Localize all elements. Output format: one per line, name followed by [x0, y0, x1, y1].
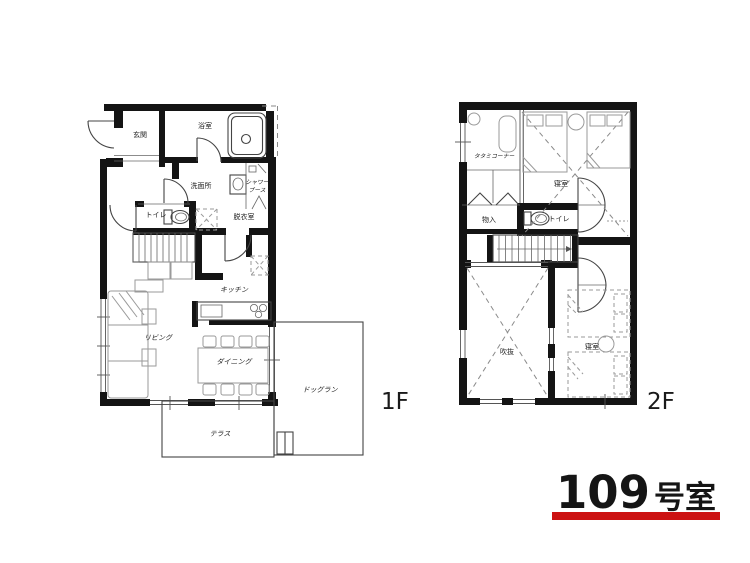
floor-tag-2f: 2F — [647, 389, 675, 415]
room-label-bedroom2: 寝室 — [585, 342, 599, 351]
room-label-shower-1: シャワー — [245, 179, 268, 186]
room-label-bathroom: 浴室 — [198, 121, 212, 130]
room-label-dining: ダイニング — [217, 358, 253, 366]
door-swing-icons-1f — [88, 121, 251, 261]
chair-icon — [468, 113, 480, 125]
washer-pan-icon — [196, 209, 217, 230]
floor-plan-1f: 玄関 浴室 洗面所 シャワー ブース トイレ 脱衣室 キッチン リビング ダイニ… — [88, 104, 409, 457]
room-label-washroom: 洗面所 — [191, 181, 212, 190]
floor-tag-1f: 1F — [381, 389, 409, 415]
room-label-void: 吹抜 — [500, 347, 514, 356]
low-table-icon — [499, 116, 516, 152]
bathtub-icon — [228, 113, 266, 158]
floorplan-drawing: 玄関 浴室 洗面所 シャワー ブース トイレ 脱衣室 キッチン リビング ダイニ… — [0, 0, 750, 563]
floorplan-page: 玄関 浴室 洗面所 シャワー ブース トイレ 脱衣室 キッチン リビング ダイニ… — [0, 0, 750, 563]
room-label-shower-2: ブース — [248, 187, 265, 194]
terrace-outline — [162, 401, 274, 457]
staircase-2f — [465, 235, 578, 267]
room-label-toilet-2f: トイレ — [549, 215, 570, 223]
room-label-bedroom1: 寝室 — [554, 179, 568, 188]
room-label-closet: 物入 — [482, 215, 496, 224]
stair-arrow-icon — [566, 246, 572, 252]
room-label-tatami: タタミコーナー — [474, 153, 515, 160]
bed-icons-bedroom1 — [523, 112, 630, 172]
refrigerator-space-icon — [251, 256, 268, 275]
room-label-dressing: 脱衣室 — [234, 212, 255, 221]
floor-plan-2f: タタミコーナー 寝室 物入 トイレ 吹抜 寝室 2F — [455, 102, 675, 415]
toilet-door-icon — [110, 205, 136, 231]
kitchen-sink-icon — [201, 305, 222, 317]
room-label-living: リビング — [144, 334, 173, 342]
washroom-door-icon — [164, 179, 188, 203]
room-label-terrace: テラス — [210, 430, 231, 438]
washbasin-icon — [230, 175, 246, 194]
bedside-table-icon-2 — [598, 336, 614, 352]
stove-icon — [250, 304, 266, 317]
unit-suffix: 号室 — [654, 480, 716, 516]
sofa-icon — [108, 291, 156, 398]
room-label-kitchen: キッチン — [220, 286, 249, 294]
bifold-door-icon — [468, 193, 519, 205]
red-underline-bar — [552, 512, 720, 520]
room-label-dogrun: ドッグラン — [303, 386, 339, 394]
kitchen-counter — [197, 302, 271, 320]
toilet-icon-2f — [524, 212, 549, 225]
unit-number: 109 — [556, 466, 650, 519]
bedside-table-icon — [568, 114, 584, 130]
entrance-door-icon — [88, 121, 114, 148]
shower-booth-icon — [246, 163, 266, 209]
staircase-1f — [133, 233, 195, 292]
toilet-icon-1f — [164, 210, 189, 224]
unit-title: 109 号室 — [552, 466, 720, 520]
room-label-toilet-1f: トイレ — [146, 211, 167, 219]
bedroom1-cross-lines — [522, 112, 628, 236]
room-label-genkan: 玄関 — [133, 130, 147, 139]
bath-door-icon — [197, 138, 221, 162]
void-cross-lines — [467, 268, 548, 397]
bed-icons-bedroom2 — [568, 290, 630, 397]
bedroom2-door-icon — [578, 258, 606, 312]
